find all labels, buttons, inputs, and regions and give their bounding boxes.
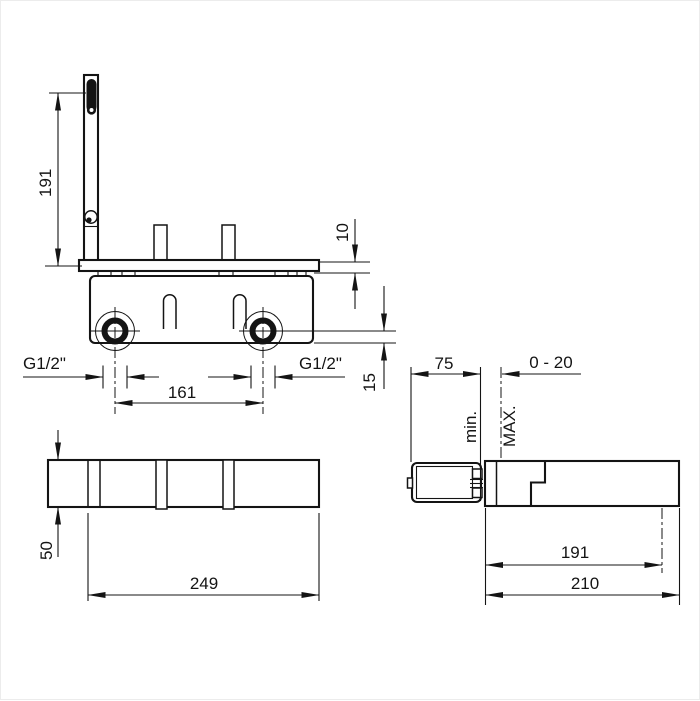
dim-label-10: 10 [333,223,352,242]
dim-bracket-height: 191 [36,93,86,266]
drawing-page: 191 10 15 G1/2" G1/2" 161 [0,0,700,700]
side-view [408,461,680,506]
mounting-post [222,225,235,261]
dim-label-15: 15 [360,373,379,392]
front-view [79,75,396,414]
thread-label-right: G1/2" [299,354,342,373]
dim-port-offset: 15 [360,286,384,392]
mounting-plate [79,260,319,271]
dim-port-spacing: 161 [115,383,263,403]
dim-thread-right: G1/2" [208,354,345,389]
dim-label-50: 50 [37,541,56,560]
slot-bar [156,460,167,509]
dim-length: 249 [88,513,319,601]
body-slot [164,295,177,329]
cartridge-notch [408,478,413,488]
body-side-outline [485,461,679,506]
label-min: min. [461,411,480,443]
mounting-post [154,225,167,261]
technical-drawing: 191 10 15 G1/2" G1/2" 161 [1,1,700,701]
thread-label-left: G1/2" [23,354,66,373]
dim-plate-thickness: 10 [314,219,370,309]
bottom-view [48,460,319,509]
dim-label-191-side: 191 [561,543,589,562]
label-max: MAX. [500,405,519,447]
dim-label-210: 210 [571,574,599,593]
dim-label-191: 191 [36,169,55,197]
dim-label-161: 161 [168,383,196,402]
dim-label-249: 249 [190,574,218,593]
dim-thread-left: G1/2" [23,354,159,389]
body-slot [234,295,247,329]
dim-label-75: 75 [435,354,454,373]
cartridge [412,463,481,502]
slot-bar [223,460,234,509]
dim-label-0-20: 0 - 20 [529,353,572,372]
